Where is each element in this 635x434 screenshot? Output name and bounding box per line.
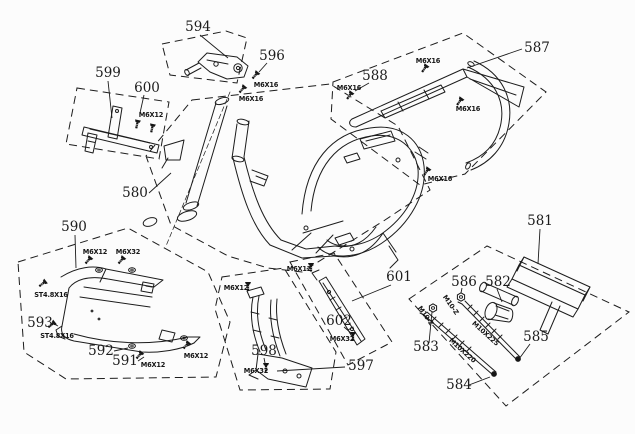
part-number-583: 583 [413,339,439,355]
leader-596 [259,63,267,72]
bolt-glyph [37,279,47,289]
boundary-599 [66,88,169,159]
part-number-601: 601 [386,269,412,285]
boundary-581-586 [409,246,629,406]
bolt-glyph [116,255,126,265]
part-number-581: 581 [527,213,553,229]
part-number-580: 580 [122,185,148,201]
leader-601 [352,285,391,301]
part-number-591: 591 [112,353,138,369]
part-number-594: 594 [185,19,211,35]
fastener-label-M6X12-6: M6X12 [139,111,164,119]
part-number-586: 586 [451,274,477,290]
fastener-label-ST4.8X16-10: ST4.8X16 [40,332,74,340]
part-number-602: 602 [326,313,352,329]
part-number-582: 582 [485,274,511,290]
part-number-585: 585 [523,329,549,345]
bolt-glyph [83,255,93,265]
fastener-label-M10X225-19: M10X225 [470,319,500,348]
part-590-floor-panel [56,267,200,352]
fastener-label-M6X12-12: M6X12 [184,352,209,360]
bolt-glyph [237,84,247,94]
fastener-label-M6X12-11: M6X12 [141,361,166,369]
fastener-label-M6X16-3: M6X16 [337,84,362,92]
part-number-597: 597 [348,358,374,374]
fastener-label-M6X12-14: M6X12 [287,265,312,273]
part-number-593: 593 [27,315,53,331]
washer-glyph [96,268,103,273]
fastener-label-M6X16-4: M6X16 [456,105,481,113]
fastener-label-M6X32-15: M6X32 [330,335,355,343]
leader-587 [467,49,522,68]
part-582-buffer [483,301,513,322]
washer-glyph [129,268,136,273]
fastener-label-M6X16-5: M6X16 [428,175,453,183]
fastener-label-M6X16-0: M6X16 [254,81,279,89]
part-594-kick-lever [184,53,248,79]
part-580-frame [232,118,428,268]
fastener-label-M6X16-1: M6X16 [239,95,264,103]
part-number-588: 588 [362,68,388,84]
leader-582 [497,289,502,302]
callouts-layer: 5945965996005875885805905935925915985976… [27,19,553,393]
bolt-glyph [148,123,156,133]
part-number-598: 598 [251,343,277,359]
part-number-599: 599 [95,65,121,81]
fastener-label-M6X16-2: M6X16 [416,57,441,65]
part-581-main-stand [478,257,590,334]
fastener-label-ST4.8X16-9: ST4.8X16 [34,291,68,299]
fastener-label-M6X12-13: M6X12 [224,284,249,292]
part-number-596: 596 [259,48,285,64]
nut-glyph [429,304,436,312]
boundary-587-588 [331,33,546,185]
leader-584 [469,377,490,385]
bolt-glyph [133,119,141,129]
nut-glyph [457,293,464,301]
part-number-600: 600 [134,80,160,96]
fastener-label-M6X32-8: M6X32 [116,248,141,256]
leader-590 [75,235,76,268]
fastener-label-M10-Z-18: M10-Z [416,304,436,327]
fastener-label-M6X12-7: M6X12 [83,248,108,256]
part-number-584: 584 [446,377,472,393]
leader-585 [519,344,530,359]
boundary-580 [146,84,430,272]
part-number-587: 587 [524,40,550,56]
washer-glyph [129,344,136,349]
fastener-label-M6X32-16: M6X32 [244,367,269,375]
fastener-label-M10X220-20: M10X220 [447,336,477,365]
diagram-svg: M6X16M6X16M6X16M6X16M6X16M6X16M6X12M6X12… [0,0,635,434]
parts-diagram: M6X16M6X16M6X16M6X16M6X16M6X16M6X12M6X12… [0,0,635,434]
part-number-592: 592 [88,343,114,359]
part-601-brace-strip [312,270,365,345]
part-number-590: 590 [61,219,87,235]
leader-599 [108,81,112,118]
leader-594 [200,35,228,58]
leader-580 [149,173,171,193]
leader-581 [538,229,540,264]
